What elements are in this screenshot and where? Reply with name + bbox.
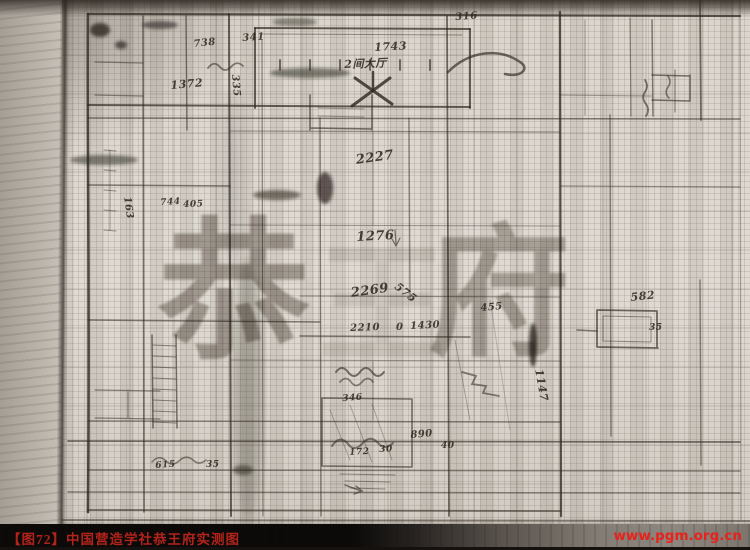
handwritten-annotation: 1743 <box>374 39 407 54</box>
screenshot-root: 恭 王 府 738341137233517432间大厅3162227127622… <box>0 0 750 550</box>
handwritten-annotation: 35 <box>206 460 220 470</box>
figure-caption: 【图72】中国营造学社恭王府实测图 <box>7 528 240 548</box>
caption-bar: 【图72】中国营造学社恭王府实测图 www.pgm.org.cn <box>0 524 750 550</box>
handwritten-annotation: 890 <box>410 428 433 441</box>
survey-drawing-photo: 恭 王 府 738341137233517432间大厅3162227127622… <box>0 0 750 524</box>
handwritten-annotation: 405 <box>183 199 204 210</box>
handwritten-annotation: 1430 <box>410 319 440 332</box>
handwritten-annotation: 346 <box>342 393 363 404</box>
top-edge-shadow <box>0 0 750 16</box>
handwritten-annotation: 163 <box>121 196 135 220</box>
handwritten-annotation: 40 <box>441 441 455 451</box>
handwritten-annotation: 35 <box>649 323 663 333</box>
handwritten-annotation: 30 <box>379 444 393 455</box>
handwritten-annotation: 0 <box>396 322 403 333</box>
website-url: www.pgm.org.cn <box>613 528 742 544</box>
handwritten-annotation: 1147 <box>532 368 550 402</box>
page-margin <box>0 0 62 524</box>
handwritten-annotation: 615 <box>155 460 176 471</box>
handwritten-annotation: 2间大厅 <box>344 55 387 72</box>
handwritten-annotation: 2269 <box>350 281 390 301</box>
handwritten-annotation: 2227 <box>355 148 395 168</box>
handwritten-annotation: 582 <box>630 288 656 303</box>
handwritten-annotation: 1276 <box>356 228 395 245</box>
handwritten-annotation: 2210 <box>350 322 380 334</box>
handwritten-annotation: 172 <box>349 447 370 458</box>
handwritten-annotation: 744 <box>160 197 181 208</box>
handwritten-annotation: 575 <box>392 280 419 305</box>
handwritten-annotation: 455 <box>480 301 503 314</box>
